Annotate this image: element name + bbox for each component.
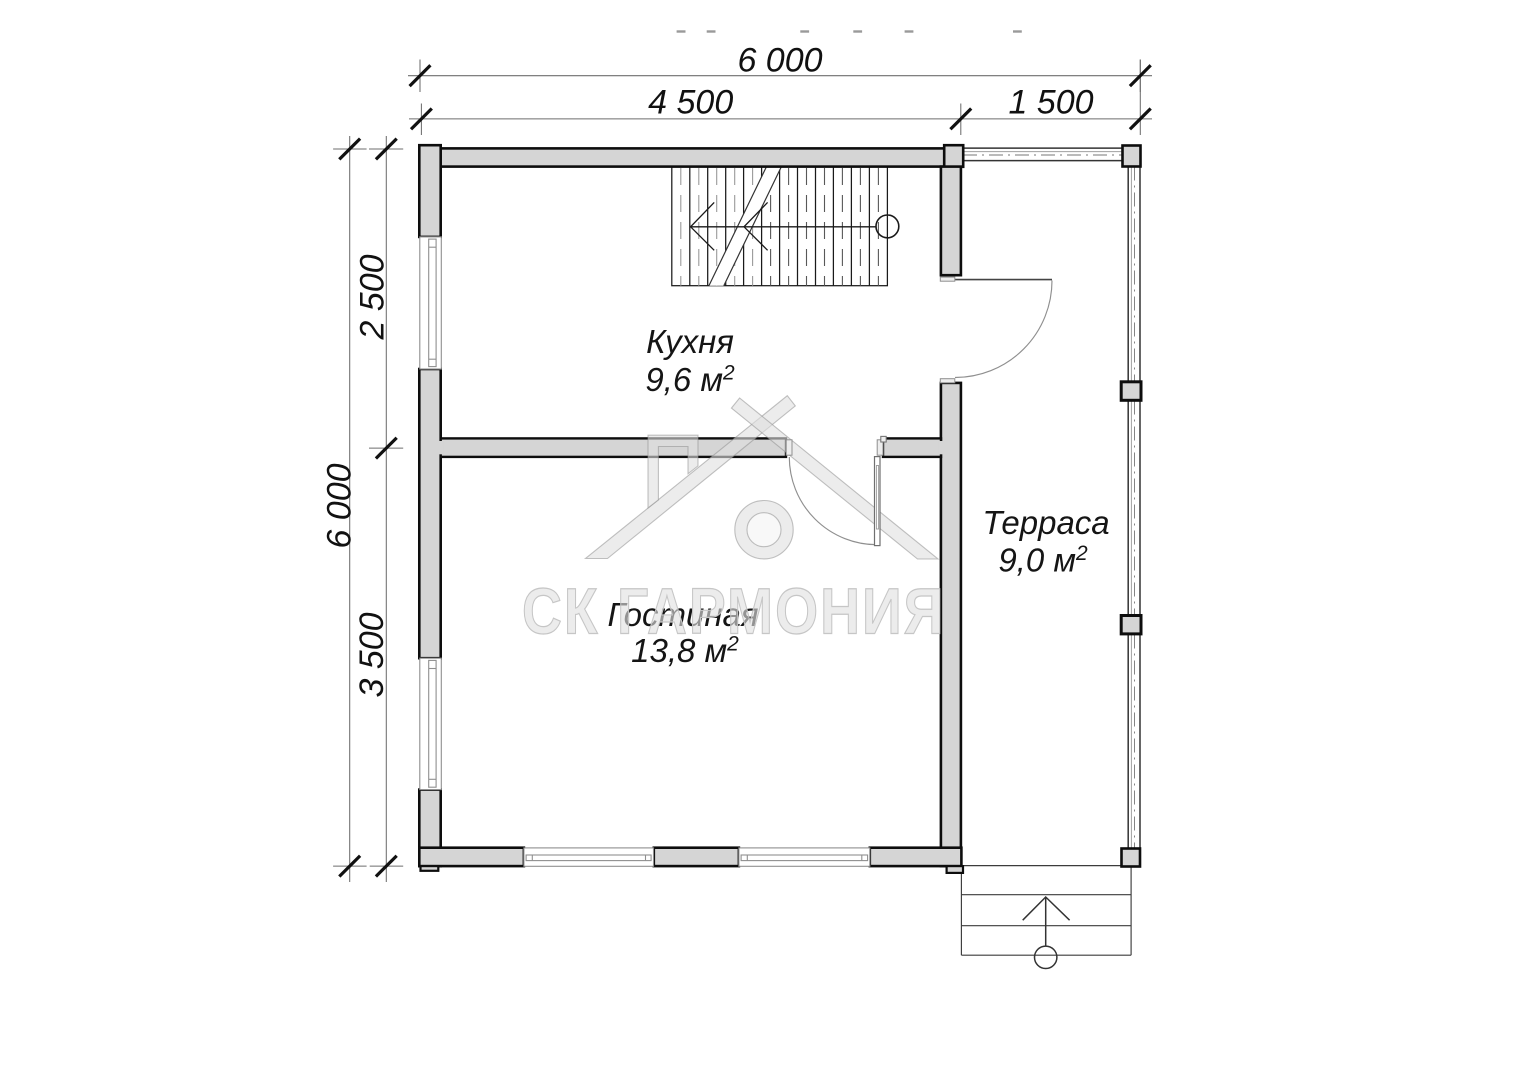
svg-text:Кухня: Кухня	[646, 323, 734, 360]
svg-text:Терраса: Терраса	[982, 504, 1109, 541]
svg-text:6 000: 6 000	[321, 463, 359, 548]
svg-text:1 500: 1 500	[1008, 84, 1093, 122]
svg-text:4 500: 4 500	[648, 84, 733, 122]
svg-text:2 500: 2 500	[353, 254, 391, 340]
svg-text:СК ГАРМОНИЯ: СК ГАРМОНИЯ	[522, 574, 946, 647]
svg-text:9,6 м2: 9,6 м2	[645, 361, 735, 398]
svg-text:6 000: 6 000	[737, 42, 822, 80]
svg-text:9,0 м2: 9,0 м2	[998, 542, 1088, 579]
svg-text:3 500: 3 500	[353, 612, 391, 697]
